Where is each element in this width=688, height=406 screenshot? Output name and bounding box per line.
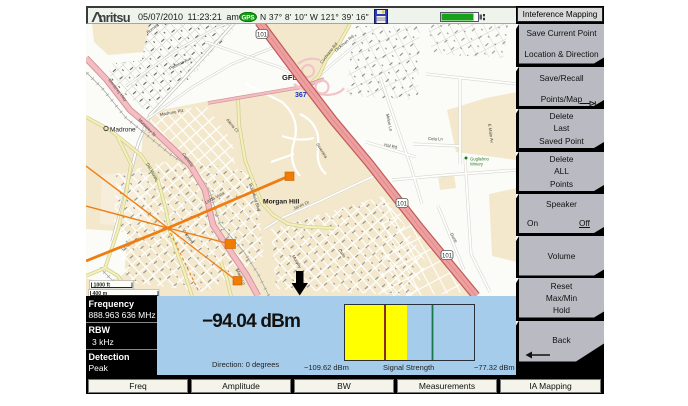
svg-text:1000 ft: 1000 ft [94,283,111,289]
svg-text:101: 101 [442,254,453,260]
svg-text:101: 101 [397,202,408,208]
svg-text:nritsu: nritsu [99,11,130,23]
svg-text:Madrone: Madrone [110,127,136,134]
svg-text:GPS: GPS [241,14,254,21]
svg-text:Morgan Hill: Morgan Hill [263,199,300,206]
svg-text:101: 101 [257,33,268,39]
svg-text:Winery: Winery [470,162,484,167]
svg-text:GFL: GFL [282,73,297,82]
svg-text:367: 367 [295,92,307,99]
svg-text:Cela Ln: Cela Ln [428,136,444,142]
